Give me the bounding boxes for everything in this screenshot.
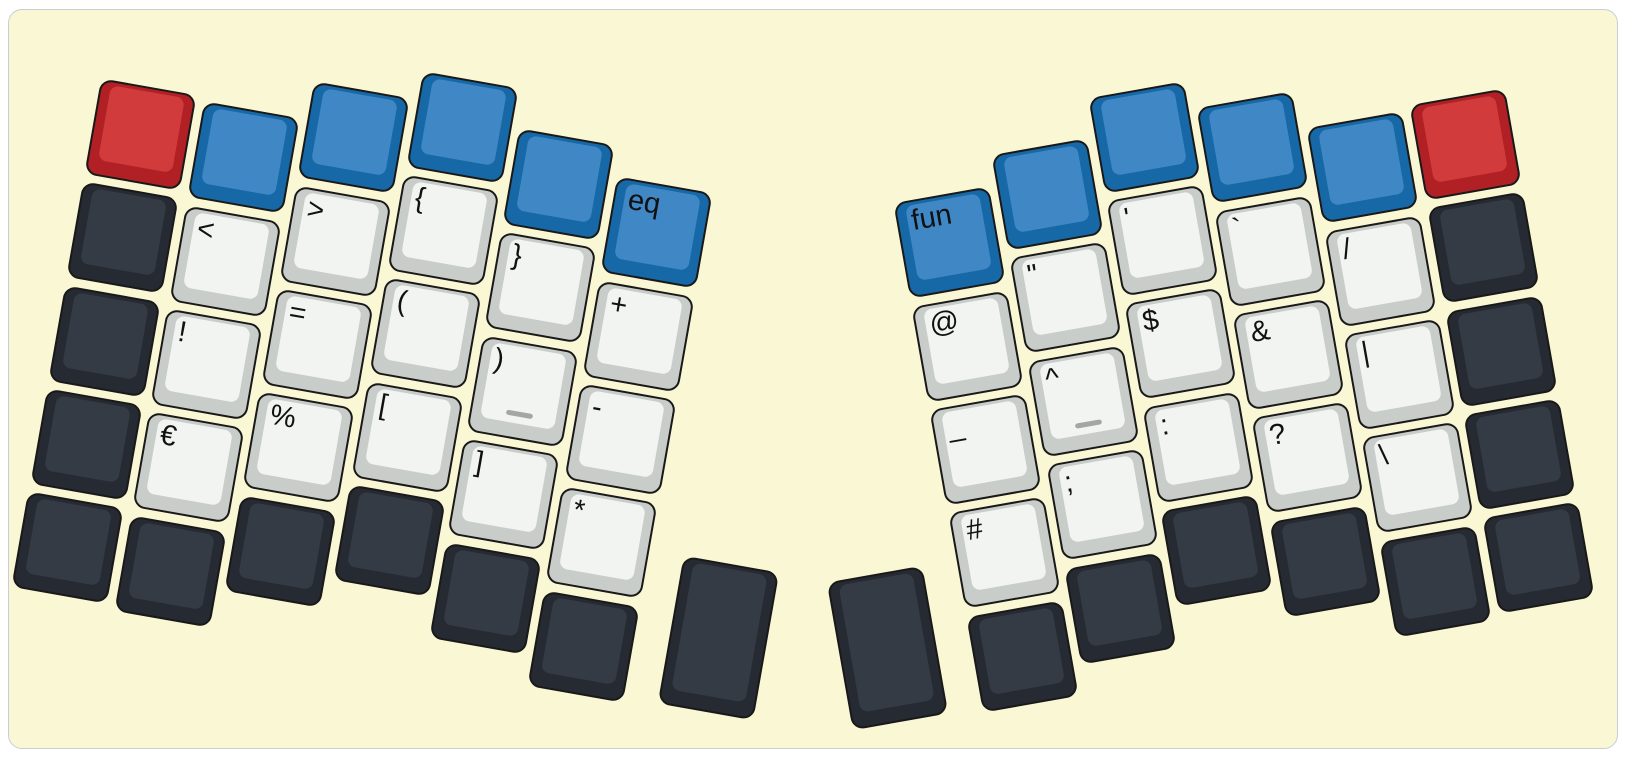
key-layer-red[interactable] [85, 78, 197, 190]
keycap-top [1457, 302, 1544, 390]
key-blank-blue[interactable] [502, 128, 614, 240]
keycap-top [461, 445, 548, 533]
keycap-top [183, 212, 270, 300]
key-blank-blue[interactable] [406, 71, 518, 183]
key-blank-dark[interactable] [48, 285, 160, 397]
key-backtick[interactable]: ` [1215, 195, 1327, 307]
key-blank-dark[interactable] [1064, 552, 1176, 664]
keycap-top [1003, 145, 1090, 233]
keycap-top [671, 563, 767, 703]
key-slash[interactable]: / [1325, 215, 1437, 327]
key-euro[interactable]: € [132, 412, 244, 524]
key-blank-dark[interactable] [429, 542, 541, 654]
key-layer-fun[interactable]: fun [893, 187, 1005, 299]
key-blank-dark[interactable] [333, 484, 445, 596]
key-thumb[interactable] [827, 566, 948, 730]
keycap-top [1421, 95, 1508, 183]
key-blank-dark[interactable] [1161, 494, 1273, 606]
key-less-than[interactable]: < [169, 205, 281, 317]
key-apostrophe[interactable]: ' [1106, 184, 1218, 296]
keycap-top [25, 499, 112, 587]
keycap-top [293, 192, 380, 280]
keycap-top [311, 88, 398, 176]
keycap-top [419, 78, 506, 166]
keycap-top [346, 491, 433, 579]
key-hash[interactable]: # [948, 497, 1060, 609]
key-brace-close[interactable]: } [484, 232, 596, 344]
keycap-top [516, 135, 603, 223]
keycap-top [578, 390, 665, 478]
key-backslash[interactable]: \ [1361, 422, 1473, 534]
keycap-top [401, 181, 488, 269]
key-bracket-close[interactable]: ] [448, 439, 560, 551]
key-blank-dark[interactable] [1269, 505, 1381, 617]
keycap-top [1058, 455, 1145, 543]
keycap-top [978, 607, 1065, 695]
keycap-top [1391, 532, 1478, 620]
keycap-top [238, 502, 325, 590]
key-layer-red[interactable] [1409, 88, 1521, 200]
key-blank-dark[interactable] [1445, 295, 1557, 407]
keycap-top [443, 549, 530, 637]
key-layer-eq[interactable]: eq [600, 177, 712, 289]
keycap-top [1172, 501, 1259, 589]
keycap-top [1373, 429, 1460, 517]
key-blank-dark[interactable] [1379, 525, 1491, 637]
key-blank-dark[interactable] [30, 388, 142, 500]
key-blank-dark[interactable] [1482, 502, 1594, 614]
keycap-top [1281, 512, 1368, 600]
key-blank-dark[interactable] [527, 590, 639, 702]
key-blank-dark[interactable] [114, 515, 226, 627]
keycap-top [1154, 398, 1241, 486]
key-question[interactable]: ? [1251, 402, 1363, 514]
key-pipe[interactable]: | [1343, 318, 1455, 430]
key-caret[interactable]: ^ [1028, 345, 1140, 457]
key-plus[interactable]: + [582, 280, 694, 392]
keycap-top [80, 188, 167, 276]
keycap-top [98, 85, 185, 173]
keycap-top [44, 395, 131, 483]
key-blank-dark[interactable] [1427, 192, 1539, 304]
key-equals[interactable]: = [261, 288, 373, 400]
key-blank-blue[interactable] [187, 102, 299, 214]
keycap-top [164, 315, 251, 403]
keycap-top [1076, 559, 1163, 647]
key-bracket-open[interactable]: [ [351, 381, 463, 493]
key-blank-blue[interactable] [991, 138, 1103, 250]
keycap-top [559, 494, 646, 582]
key-paren-close[interactable]: ) [466, 335, 578, 447]
key-greater-than[interactable]: > [279, 185, 391, 297]
keycap-top [1318, 118, 1405, 206]
key-blank-dark[interactable] [224, 495, 336, 607]
key-blank-blue[interactable] [1088, 81, 1200, 193]
key-colon[interactable]: : [1143, 391, 1255, 503]
keycap-top [365, 388, 452, 476]
keycap-top [383, 284, 470, 372]
keycap-top [541, 597, 628, 685]
key-semicolon[interactable]: ; [1046, 449, 1158, 561]
key-legend: eq [626, 185, 663, 221]
key-blank-dark[interactable] [66, 182, 178, 294]
key-percent[interactable]: % [243, 392, 355, 504]
key-blank-blue[interactable] [1196, 92, 1308, 204]
keycap-top [1494, 509, 1581, 597]
keycap-top [1439, 198, 1526, 286]
keycap-top [1208, 98, 1295, 186]
key-blank-blue[interactable] [297, 82, 409, 194]
key-blank-dark[interactable] [966, 600, 1078, 712]
key-thumb[interactable] [658, 556, 779, 720]
key-ampersand[interactable]: & [1233, 298, 1345, 410]
key-blank-dark[interactable] [12, 492, 124, 604]
keycap-top [62, 292, 149, 380]
key-double-quote[interactable]: " [1010, 242, 1122, 354]
key-asterisk[interactable]: * [546, 487, 658, 599]
key-legend: @ [927, 305, 961, 340]
keycap-top [201, 108, 288, 196]
key-dollar[interactable]: $ [1124, 288, 1236, 400]
key-blank-dark[interactable] [1464, 398, 1576, 510]
keyboard-layout: <!€>=%{([})]eq+-*fun@_#"^;'$:`&?/|\ [0, 0, 1628, 758]
keycap-top [1336, 222, 1423, 310]
keycap-top [1355, 325, 1442, 413]
keycap-top [498, 239, 585, 327]
keycap-top [839, 573, 935, 713]
keycap-top [274, 295, 361, 383]
key-exclamation[interactable]: ! [151, 308, 263, 420]
keycap-top [1118, 191, 1205, 279]
keycap-top [256, 399, 343, 487]
key-brace-open[interactable]: { [388, 174, 500, 286]
keycap-top [1100, 88, 1187, 176]
keycap-top [596, 287, 683, 375]
keycap-top [1475, 405, 1562, 493]
key-blank-blue[interactable] [1306, 112, 1418, 224]
keycap-top [146, 419, 233, 507]
key-legend: fun [909, 200, 954, 237]
key-underscore[interactable]: _ [930, 393, 1042, 505]
key-minus[interactable]: - [564, 383, 676, 495]
keycap-top [128, 522, 215, 610]
key-paren-open[interactable]: ( [369, 278, 481, 390]
key-at[interactable]: @ [911, 290, 1023, 402]
